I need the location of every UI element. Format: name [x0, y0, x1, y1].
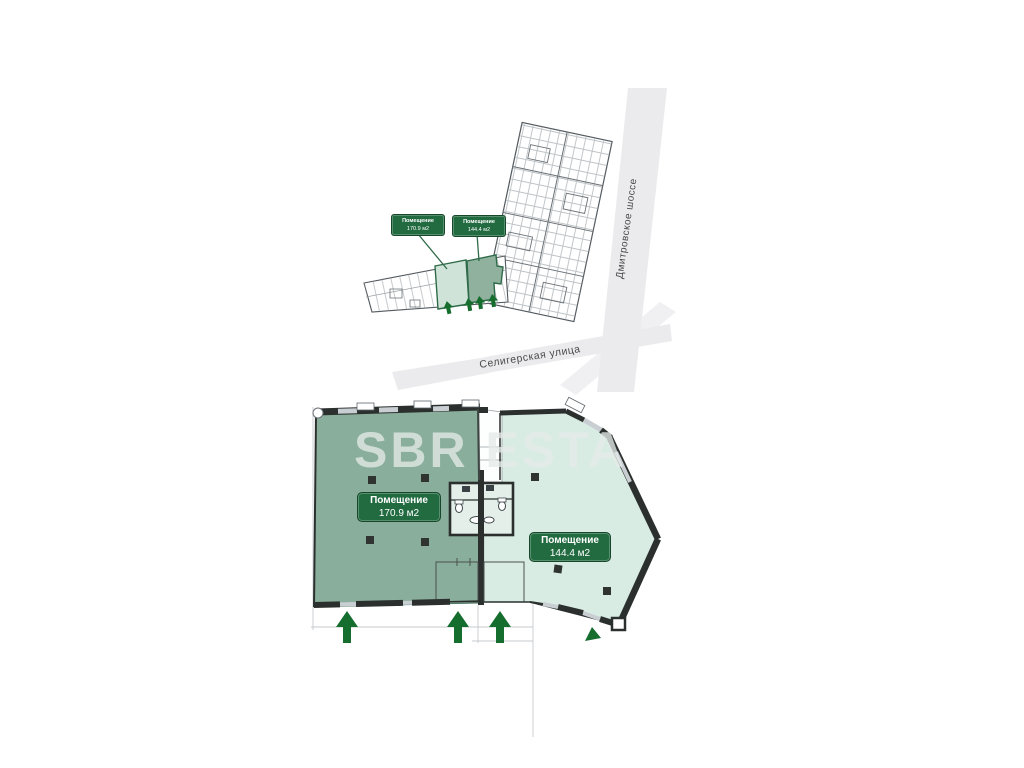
mini-unit-title: Помещение: [453, 219, 505, 226]
watermark-text: SBR ESTA: [354, 425, 627, 475]
mini-unit-title: Помещение: [392, 218, 444, 225]
mini-unit-label-144: Помещение 144.4 м2: [452, 215, 506, 237]
central-wall: [478, 470, 484, 605]
room-area: 170.9 м2: [358, 508, 440, 520]
mini-unit-label-170: Помещение 170.9 м2: [391, 214, 445, 236]
mini-unit-area: 170.9 м2: [392, 226, 444, 233]
room-label-170: Помещение 170.9 м2: [357, 492, 441, 522]
entrance-arrow-icon: [585, 627, 601, 641]
plan-canvas: [0, 0, 1024, 768]
room-area: 144.4 м2: [530, 548, 610, 560]
entrance-arrow-icon: [489, 611, 511, 643]
floor-plan-page: SBR ESTA Дмитровское шоссе Селигерская у…: [0, 0, 1024, 768]
room-label-144: Помещение 144.4 м2: [529, 532, 611, 562]
entrance-arrow-icon: [447, 611, 469, 643]
entrance-arrow-icon: [336, 611, 358, 643]
mini-unit-area: 144.4 м2: [453, 227, 505, 234]
mini-unit-170: [435, 260, 469, 309]
room-title: Помещение: [358, 495, 440, 507]
room-title: Помещение: [530, 535, 610, 547]
